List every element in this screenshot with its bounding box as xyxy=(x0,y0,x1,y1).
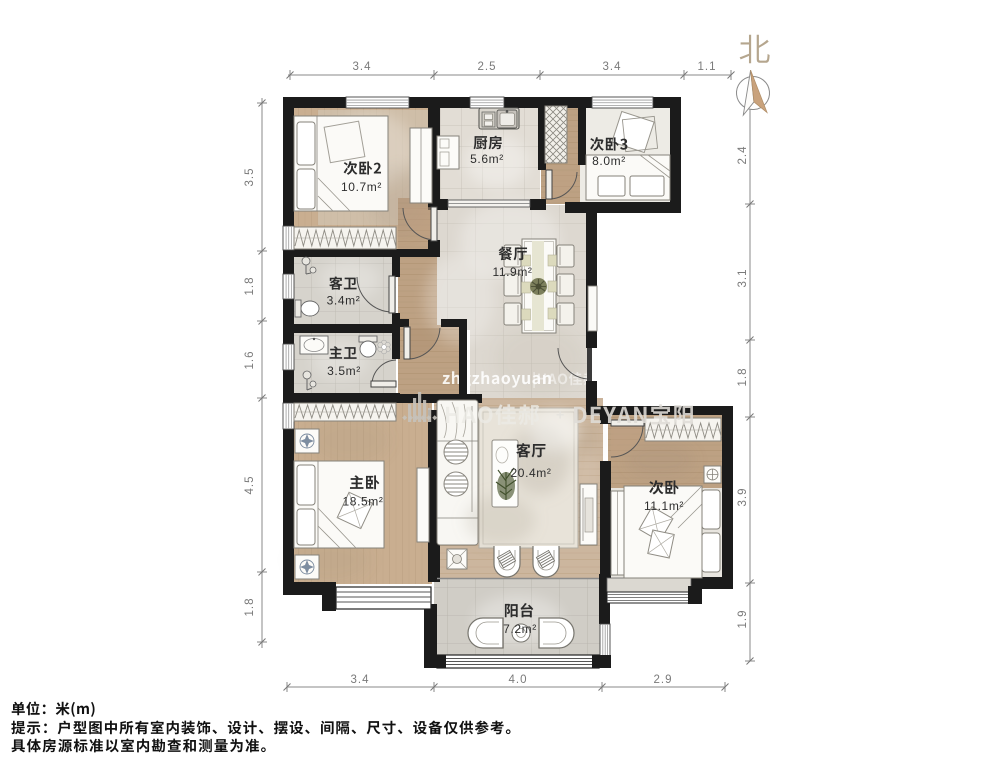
svg-text:8.0m²: 8.0m² xyxy=(592,154,626,168)
svg-text:4.0: 4.0 xyxy=(509,674,528,686)
svg-text:3.4: 3.4 xyxy=(603,61,622,73)
svg-text:3.5m²: 3.5m² xyxy=(327,364,361,378)
svg-text:20.4m²: 20.4m² xyxy=(511,466,552,480)
svg-text:1.9: 1.9 xyxy=(737,610,749,629)
svg-text:10.7m²: 10.7m² xyxy=(341,180,382,194)
svg-text:11.1m²: 11.1m² xyxy=(644,499,684,513)
svg-text:3.4: 3.4 xyxy=(351,674,370,686)
svg-text:2.9: 2.9 xyxy=(654,674,673,686)
svg-text:1.8: 1.8 xyxy=(244,598,256,617)
svg-text:2.5: 2.5 xyxy=(478,61,497,73)
svg-text:7.2m²: 7.2m² xyxy=(503,622,537,636)
svg-text:3.4: 3.4 xyxy=(353,61,372,73)
svg-text:2.4: 2.4 xyxy=(737,146,749,165)
svg-text:18.5m²: 18.5m² xyxy=(343,495,384,509)
svg-text:1.6: 1.6 xyxy=(244,351,256,370)
svg-text:3.4m²: 3.4m² xyxy=(327,294,361,308)
svg-text:11.9m²: 11.9m² xyxy=(492,265,532,279)
svg-text:3.9: 3.9 xyxy=(737,488,749,507)
svg-text:3.5: 3.5 xyxy=(244,168,256,187)
svg-text:5.6m²: 5.6m² xyxy=(470,152,504,166)
svg-text:4.5: 4.5 xyxy=(244,476,256,495)
svg-text:1.1: 1.1 xyxy=(698,61,717,73)
svg-text:1.8: 1.8 xyxy=(737,368,749,387)
svg-text:3.1: 3.1 xyxy=(737,269,749,288)
svg-text:1.8: 1.8 xyxy=(244,277,256,296)
